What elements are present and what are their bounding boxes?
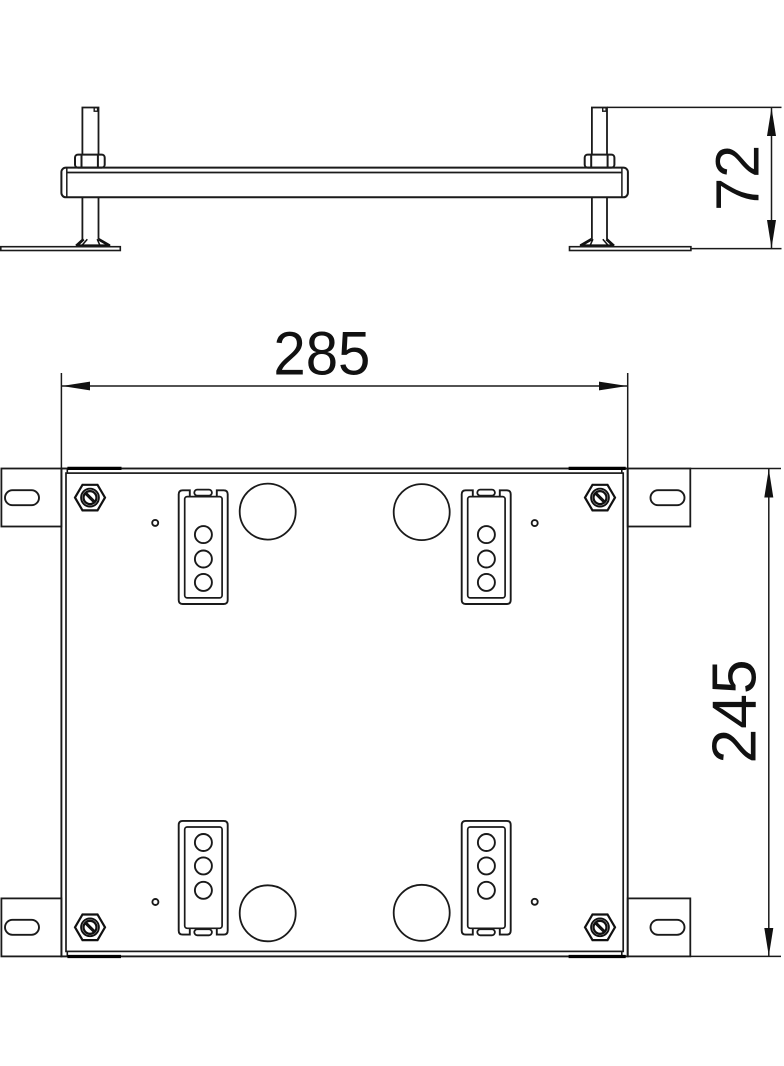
svg-text:72: 72 [704, 145, 773, 211]
svg-text:285: 285 [273, 320, 370, 389]
svg-text:245: 245 [701, 659, 770, 763]
